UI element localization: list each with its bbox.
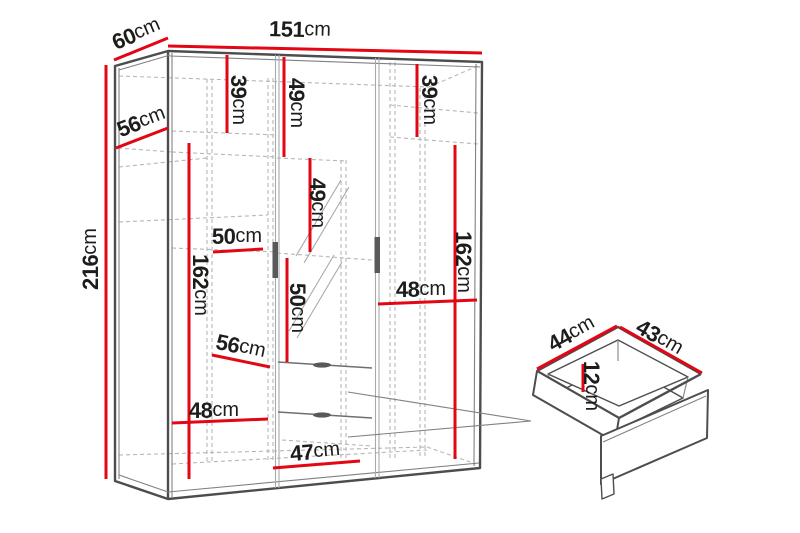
dim-width-label: 151cm xyxy=(269,16,332,43)
dim-left-shelf-width-label: 50cm xyxy=(212,224,262,249)
diagram-page: 60cm 151cm 216cm 56cm 39cm 49cm 39cm 49c… xyxy=(0,0,800,533)
dim-drawer-height-label: 12cm xyxy=(580,361,605,411)
dim-right-hanging-height-label: 162cm xyxy=(452,231,477,293)
dim-bottom-left-width-label: 48cm xyxy=(189,398,239,423)
dim-mirror-height-label: 50cm xyxy=(286,283,311,333)
dim-depth-label: 60cm xyxy=(108,12,164,55)
internal-drawer-handle-bottom xyxy=(313,412,331,417)
door-handle-left xyxy=(273,242,279,278)
door-handle-right xyxy=(375,237,381,273)
dim-bottom-drawer-width-label: 47cm xyxy=(289,436,341,465)
dim-left-top-height-label: 39cm xyxy=(227,75,252,125)
dim-right-shelf-width-label: 48cm xyxy=(396,277,446,302)
dim-height-label: 216cm xyxy=(78,228,103,290)
internal-drawer-handle-top xyxy=(313,362,331,367)
dim-center-middle-height-label: 49cm xyxy=(306,178,331,228)
dim-left-hanging-height-label: 162cm xyxy=(189,254,214,316)
dim-right-top-height-label: 39cm xyxy=(418,75,443,125)
dim-top-left-shelf-depth-label: 56cm xyxy=(113,100,169,141)
dim-center-top-height-label: 49cm xyxy=(285,78,310,128)
internal-drawer-fronts xyxy=(278,362,372,418)
diagram-canvas: 60cm 151cm 216cm 56cm 39cm 49cm 39cm 49c… xyxy=(0,0,800,533)
